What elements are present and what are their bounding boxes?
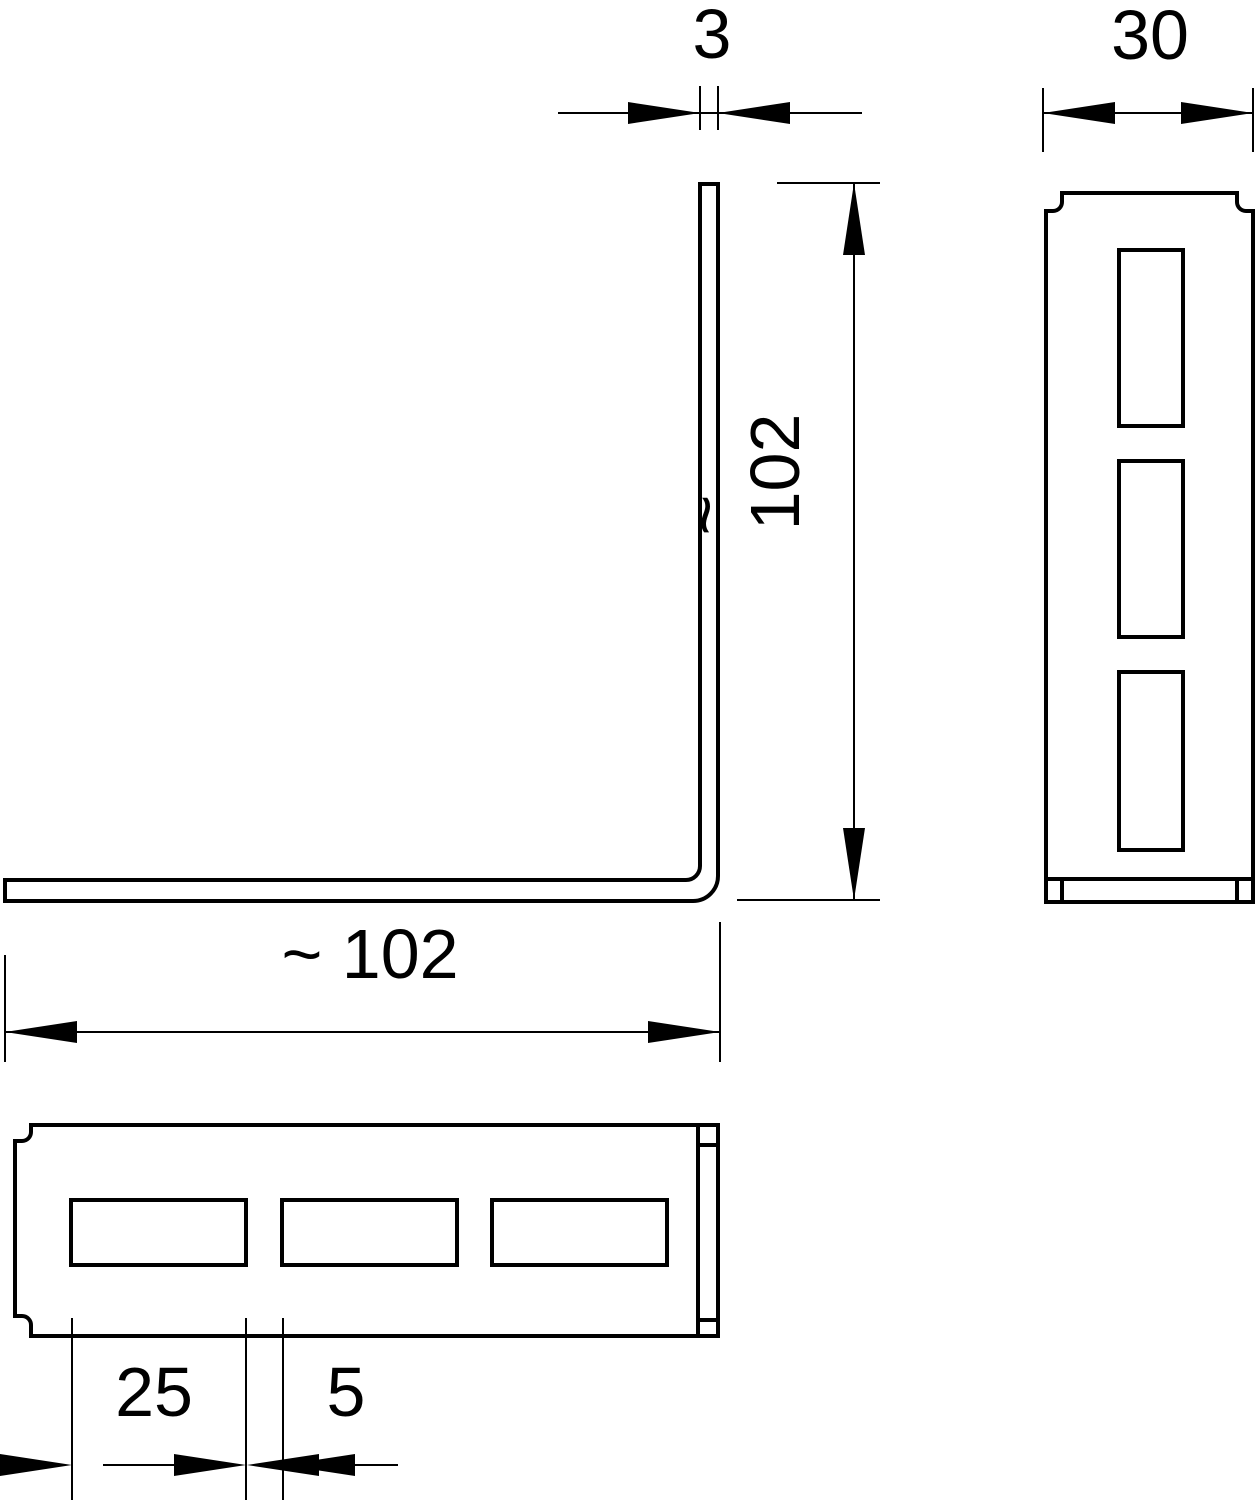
- top-view-slot-1: [71, 1200, 246, 1265]
- arrowhead-left-icon: [718, 102, 790, 124]
- dim-slots: 25 5: [0, 1318, 398, 1500]
- side-view: [5, 184, 718, 901]
- dim-thickness-label: 3: [693, 0, 732, 73]
- dim-length: ~ 102: [5, 915, 720, 1062]
- arrowhead-down-icon: [843, 828, 865, 900]
- dim-length-label: ~ 102: [281, 915, 458, 993]
- top-view-slot-3: [492, 1200, 667, 1265]
- dim-width-label: 30: [1111, 0, 1189, 74]
- arrowhead-left-icon: [1043, 102, 1115, 124]
- arrowhead-right-icon: [628, 102, 700, 124]
- dim-thickness: 3: [558, 0, 862, 130]
- arrowhead-right-icon: [0, 1454, 72, 1476]
- front-view-slot-2: [1119, 461, 1183, 637]
- drawing-canvas: 3 30 ~ 102 ~ 102 25: [0, 0, 1257, 1500]
- arrowhead-up-icon: [843, 183, 865, 255]
- front-view: [1046, 193, 1253, 902]
- arrowhead-right-icon: [648, 1021, 720, 1043]
- arrowhead-left-icon: [5, 1021, 77, 1043]
- dim-slot-length-label: 25: [115, 1353, 193, 1431]
- dim-flange-width: 30: [1043, 0, 1253, 152]
- top-view: [15, 1125, 718, 1336]
- arrowhead-right-icon: [1181, 102, 1253, 124]
- front-view-slot-3: [1119, 672, 1183, 850]
- side-view-profile: [5, 184, 718, 901]
- dim-slot-spacing-label: 5: [327, 1353, 366, 1431]
- front-view-slot-1: [1119, 250, 1183, 426]
- top-view-slot-2: [282, 1200, 457, 1265]
- dim-height-approx-sign: ~: [666, 495, 744, 536]
- arrowhead-right-icon: [174, 1454, 246, 1476]
- dim-height-label: 102: [736, 414, 814, 531]
